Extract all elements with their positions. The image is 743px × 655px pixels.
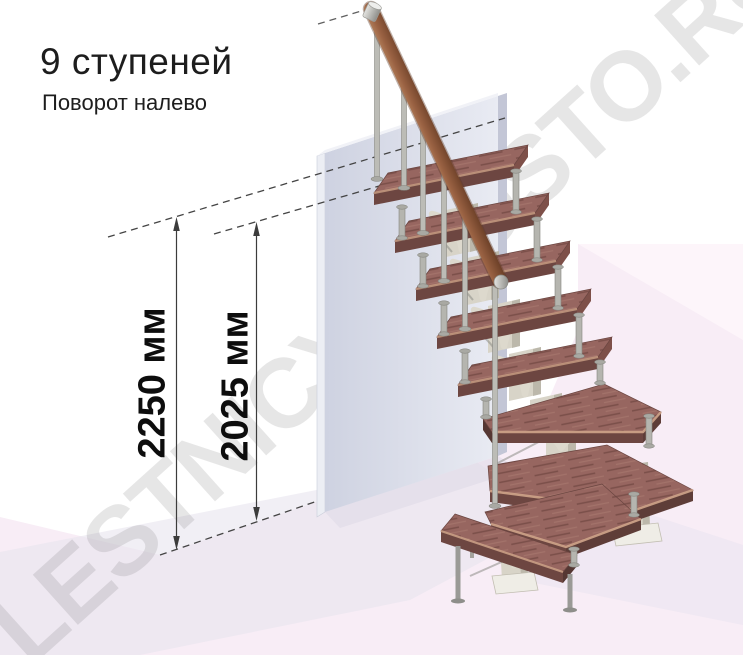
page-title: 9 ступеней	[40, 42, 233, 83]
handrail-end-cap	[494, 275, 508, 289]
bottom-step-right-leg	[568, 574, 573, 609]
dimension-label-total-height: 2250 мм	[132, 307, 175, 458]
bottom-step-right-foot	[563, 608, 577, 613]
bottom-step-left-leg	[456, 546, 461, 600]
page-subtitle: Поворот налево	[42, 90, 207, 116]
newel-pole	[493, 286, 498, 508]
dimension-label-steps-height: 2025 мм	[215, 310, 258, 461]
screenshot-root: LESTNICYPROSTO.RU	[0, 0, 743, 655]
bottom-step-left-foot	[451, 599, 465, 604]
